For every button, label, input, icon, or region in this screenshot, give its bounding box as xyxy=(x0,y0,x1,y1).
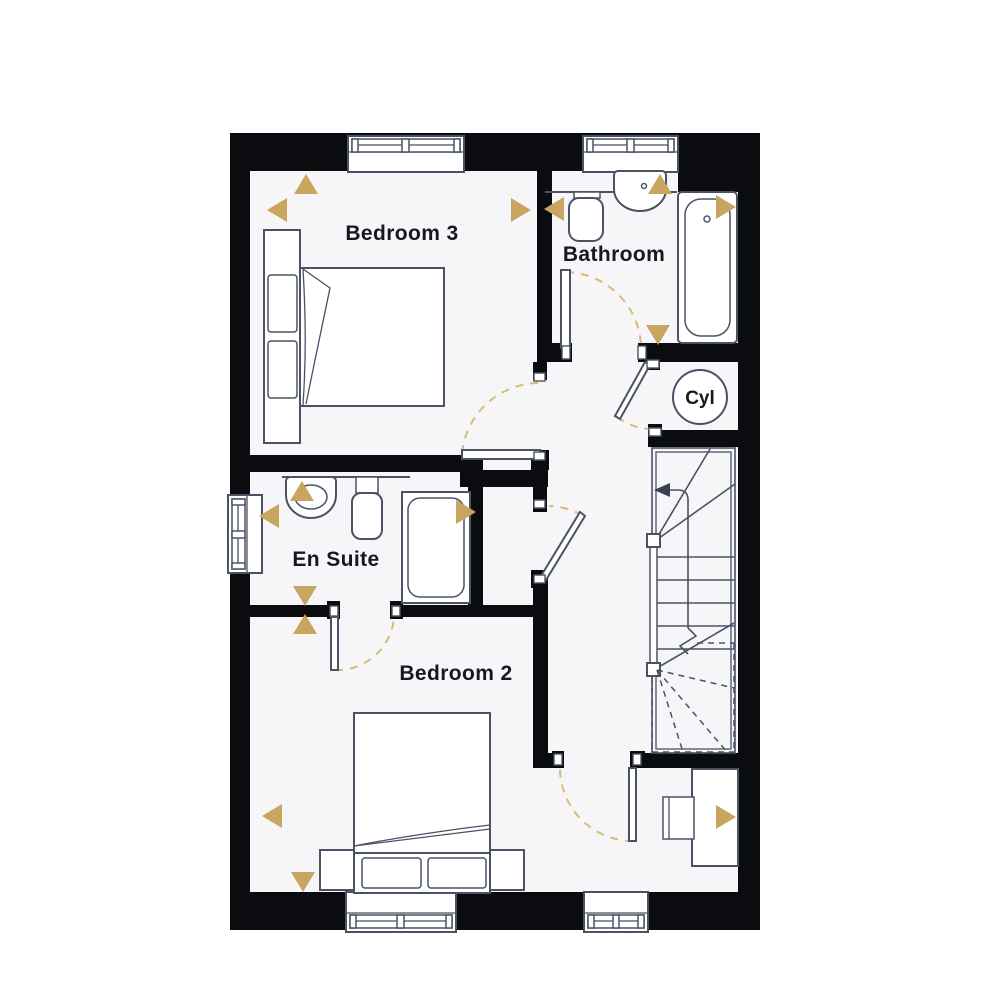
room-label-bedroom2: Bedroom 2 xyxy=(399,662,512,685)
stair-handrail xyxy=(650,547,657,663)
room-label-ensuite: En Suite xyxy=(292,548,379,571)
stair-newel-post xyxy=(647,534,660,547)
window-bedroom2 xyxy=(346,892,456,932)
floor-plan-page: Cyl xyxy=(0,0,1000,1000)
window-bathroom xyxy=(583,136,678,172)
room-label-bathroom: Bathroom xyxy=(563,243,665,266)
window-ensuite xyxy=(228,495,262,573)
bath xyxy=(678,192,737,343)
cylinder-label: Cyl xyxy=(685,388,715,409)
floor-plan: Cyl xyxy=(0,0,1000,1000)
window-landing xyxy=(584,892,648,932)
toilet-ensuite xyxy=(352,477,382,539)
room-label-bedroom3: Bedroom 3 xyxy=(345,222,458,245)
window-bedroom3 xyxy=(348,136,464,172)
floor-area xyxy=(240,150,750,910)
cylinder-cupboard: Cyl xyxy=(673,370,727,424)
toilet-bathroom xyxy=(569,192,603,241)
